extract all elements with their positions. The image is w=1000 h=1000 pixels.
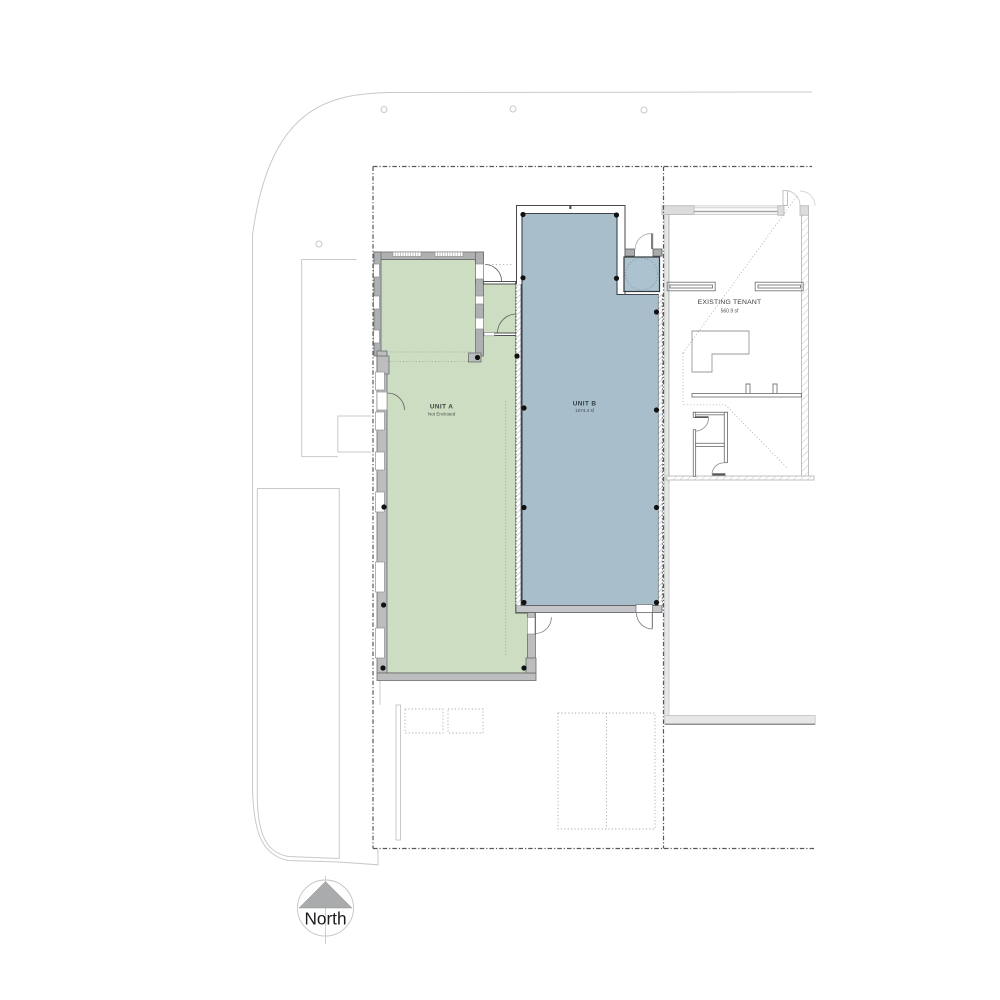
svg-text:North: North — [304, 909, 346, 929]
svg-text:Not Enclosed: Not Enclosed — [428, 412, 456, 417]
svg-text:UNIT B: UNIT B — [573, 401, 597, 408]
svg-text:1074.4 sf: 1074.4 sf — [575, 408, 595, 413]
svg-text:UNIT A: UNIT A — [430, 404, 453, 411]
svg-text:560.9 sf: 560.9 sf — [721, 309, 739, 315]
svg-text:EXISTING TENANT: EXISTING TENANT — [698, 299, 762, 306]
